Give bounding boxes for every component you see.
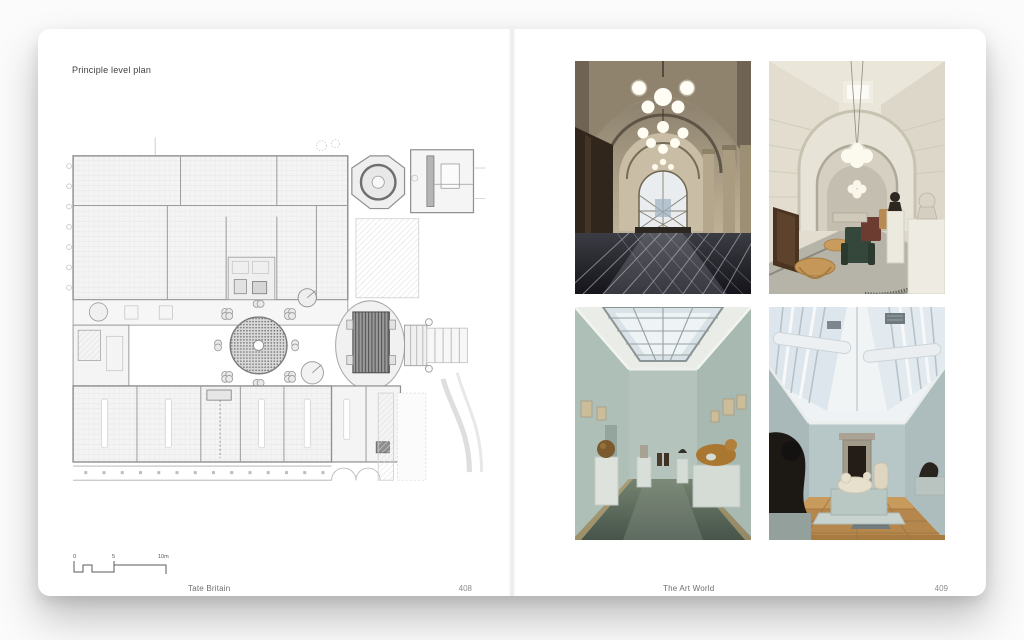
plan-octagon-room bbox=[352, 156, 405, 209]
stone-columns bbox=[702, 145, 751, 245]
screenshot-stage: Principle level plan bbox=[0, 0, 1024, 640]
patterned-floor bbox=[575, 233, 751, 294]
right-page-number: 409 bbox=[935, 584, 948, 593]
scale-label-10m: 10m bbox=[158, 554, 169, 560]
photo-skylit-long-gallery bbox=[575, 307, 751, 540]
photo-grid bbox=[575, 61, 945, 540]
arched-window bbox=[639, 171, 687, 229]
photo-toplit-sculpture-room bbox=[769, 307, 945, 540]
photo-arched-corridor-lounge bbox=[769, 61, 945, 294]
book-spread: Principle level plan bbox=[38, 29, 986, 596]
page-gutter bbox=[508, 29, 516, 596]
scale-bar: 0 5 10m bbox=[70, 551, 186, 579]
plan-curving-drive bbox=[443, 373, 482, 472]
plan-landscape-left bbox=[67, 164, 72, 291]
plan-portico-steps bbox=[405, 319, 468, 373]
left-page: Principle level plan bbox=[38, 29, 512, 596]
plan-annex bbox=[411, 150, 486, 213]
plan-colonnade bbox=[73, 466, 380, 480]
plan-trees-top bbox=[316, 140, 339, 151]
plan-garden-bed bbox=[397, 393, 425, 480]
photo-vaulted-entrance-hall bbox=[575, 61, 751, 294]
scale-bar-glyph bbox=[74, 561, 166, 574]
scale-label-5: 5 bbox=[112, 554, 115, 560]
left-footer-caption: Tate Britain bbox=[188, 584, 230, 593]
plan-courtyard bbox=[356, 219, 419, 298]
plan-left-wing bbox=[73, 325, 129, 386]
plan-title: Principle level plan bbox=[72, 65, 151, 75]
plan-main-block bbox=[73, 156, 348, 300]
plan-lower-galleries bbox=[73, 386, 331, 462]
plan-garden-strip bbox=[378, 393, 393, 480]
floor-plan-drawing bbox=[66, 137, 512, 493]
scale-label-0: 0 bbox=[73, 554, 76, 560]
left-page-number: 408 bbox=[459, 584, 472, 593]
plan-grand-staircase bbox=[336, 301, 405, 390]
floor-plan-svg bbox=[66, 137, 512, 493]
right-footer-caption: The Art World bbox=[663, 584, 714, 593]
right-page: The Art World 409 bbox=[512, 29, 986, 596]
